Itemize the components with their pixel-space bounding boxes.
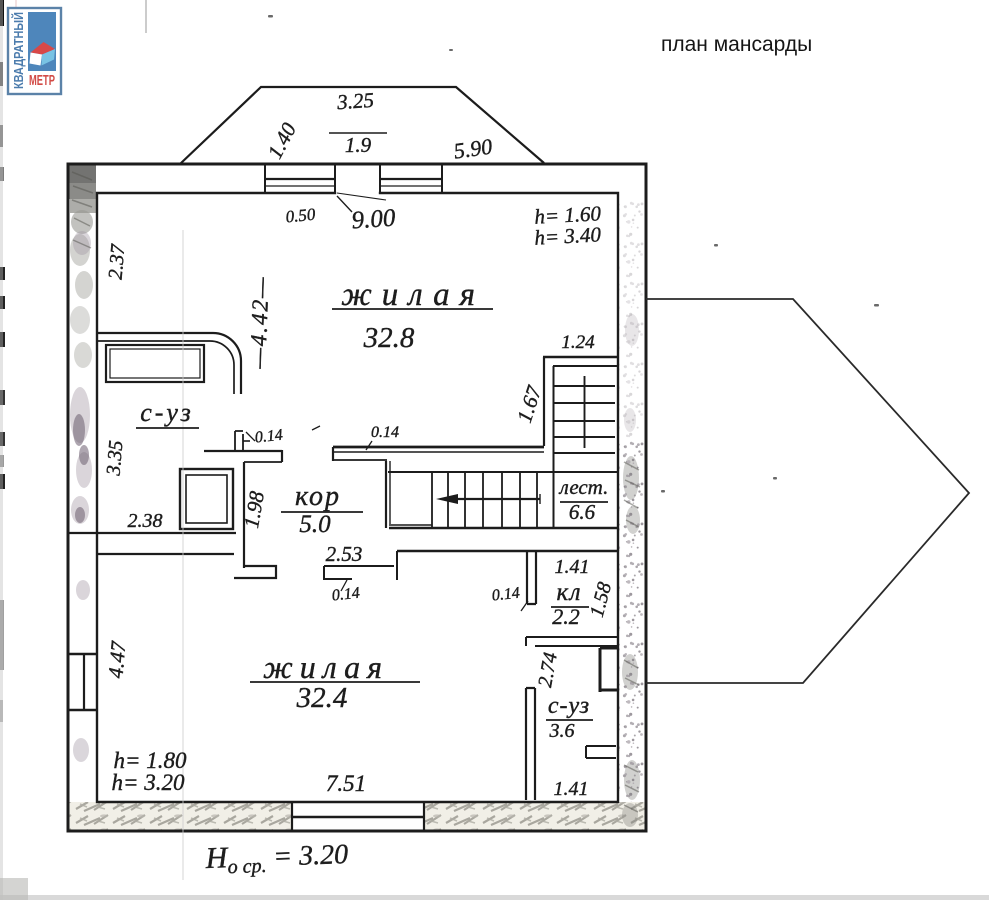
svg-text:1.41: 1.41 <box>555 556 590 578</box>
svg-text:с-уз: с-уз <box>140 398 194 427</box>
svg-text:кл: кл <box>556 579 581 606</box>
svg-text:1.58: 1.58 <box>586 580 616 620</box>
svg-text:с-уз: с-уз <box>548 693 590 719</box>
svg-text:2.53: 2.53 <box>326 542 363 566</box>
svg-text:КВАДРАТНЫЙ: КВАДРАТНЫЙ <box>11 12 26 89</box>
svg-text:2.38: 2.38 <box>128 510 163 532</box>
svg-text:6.6: 6.6 <box>569 500 596 524</box>
svg-text:5.0: 5.0 <box>299 511 331 538</box>
svg-text:0.14: 0.14 <box>491 585 521 605</box>
svg-text:кор: кор <box>295 481 341 512</box>
svg-text:1.40: 1.40 <box>263 118 302 162</box>
svg-text:план мансарды: план мансарды <box>661 33 812 56</box>
svg-text:5.90: 5.90 <box>452 134 494 164</box>
svg-text:2.37: 2.37 <box>105 243 130 281</box>
svg-text:—4.42—: —4.42— <box>245 275 273 370</box>
svg-text:0.14: 0.14 <box>331 585 361 605</box>
svg-text:1.9: 1.9 <box>345 133 372 157</box>
svg-text:МЕТР: МЕТР <box>29 72 55 89</box>
svg-text:1.98: 1.98 <box>239 489 269 530</box>
svg-text:9.00: 9.00 <box>351 204 397 234</box>
svg-text:0.14: 0.14 <box>254 427 284 447</box>
svg-text:1.67: 1.67 <box>512 382 547 426</box>
svg-text:0.50: 0.50 <box>285 204 317 226</box>
svg-text:3.6: 3.6 <box>549 720 575 742</box>
svg-text:0.14: 0.14 <box>371 424 399 441</box>
svg-text:Но ср. = 3.20: Но ср. = 3.20 <box>204 837 349 879</box>
svg-text:7.51: 7.51 <box>326 771 366 796</box>
svg-text:1.41: 1.41 <box>554 778 589 800</box>
svg-text:32.8: 32.8 <box>363 322 415 354</box>
svg-text:3.25: 3.25 <box>335 88 374 115</box>
svg-text:3.35: 3.35 <box>102 440 127 478</box>
svg-text:2.74: 2.74 <box>534 651 562 689</box>
svg-text:лест.: лест. <box>559 475 609 499</box>
svg-text:4.47: 4.47 <box>103 639 130 679</box>
svg-text:1.24: 1.24 <box>561 332 595 353</box>
svg-text:h= 3.40: h= 3.40 <box>534 222 602 249</box>
svg-text:жилая: жилая <box>263 649 389 685</box>
svg-text:32.4: 32.4 <box>296 682 348 714</box>
svg-text:жилая: жилая <box>341 277 485 313</box>
svg-text:h= 3.20: h= 3.20 <box>111 770 185 795</box>
